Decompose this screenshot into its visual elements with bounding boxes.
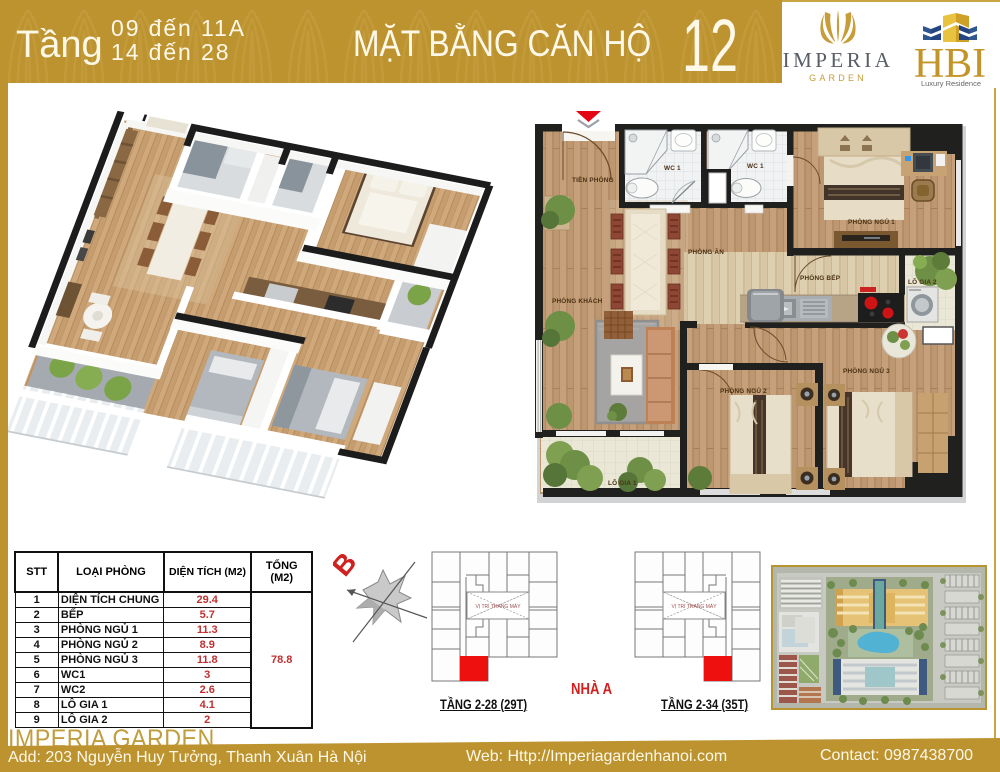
svg-text:PHÒNG KHÁCH: PHÒNG KHÁCH (552, 296, 603, 305)
svg-text:PHÒNG ĂN: PHÒNG ĂN (688, 247, 724, 256)
svg-text:VỊ TRÍ THANG MÁY: VỊ TRÍ THANG MÁY (671, 603, 717, 610)
svg-text:PHÒNG NGỦ 2: PHÒNG NGỦ 2 (720, 386, 767, 395)
svg-text:PHÒNG NGỦ 3: PHÒNG NGỦ 3 (843, 366, 890, 375)
svg-text:Luxury Residence: Luxury Residence (921, 79, 981, 88)
svg-text:WC 1: WC 1 (747, 163, 764, 170)
svg-text:VỊ TRÍ THANG MÁY: VỊ TRÍ THANG MÁY (475, 603, 521, 610)
svg-text:GARDEN: GARDEN (809, 73, 867, 83)
svg-text:B: B (333, 552, 363, 582)
svg-text:PHÒNG NGỦ 1: PHÒNG NGỦ 1 (848, 217, 895, 226)
svg-text:WC 1: WC 1 (664, 165, 681, 172)
svg-text:LÔ GIA 1: LÔ GIA 1 (608, 478, 637, 487)
svg-text:LÔ GIA 2: LÔ GIA 2 (908, 277, 937, 286)
svg-text:IMPERIA: IMPERIA (783, 48, 894, 72)
